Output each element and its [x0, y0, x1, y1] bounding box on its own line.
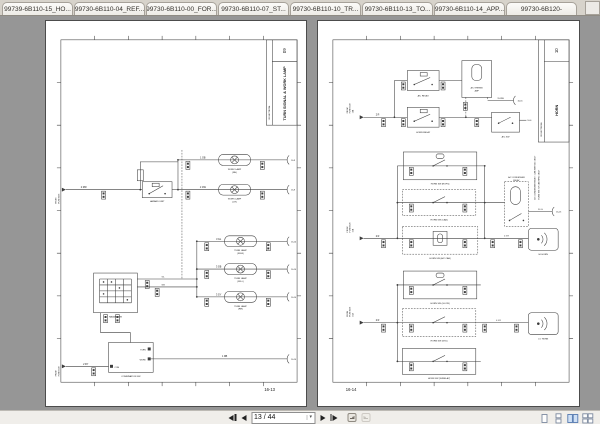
tab-8[interactable]: 99730-6B120- [506, 2, 577, 15]
connector [409, 240, 413, 248]
cross-reference [552, 207, 554, 216]
entry-label: FUSE BOX [58, 366, 60, 377]
entry-label: FROM [55, 197, 57, 203]
connector [186, 161, 190, 169]
cross-reference [287, 292, 289, 301]
ac-switch-box [492, 112, 520, 132]
horn-symbol [537, 233, 547, 246]
continuous-view-button[interactable] [553, 413, 564, 424]
connector [382, 119, 386, 127]
connector [260, 161, 264, 169]
component-label: HI HORN [539, 254, 549, 256]
component-label: A/C SW [502, 136, 511, 139]
pin-label: COM [114, 367, 119, 369]
cross-reference [287, 185, 289, 194]
bar-icon [330, 414, 332, 421]
turn-lamp-row-3: 3 GY 16-14 TURN LAMP (RR) [196, 291, 297, 310]
note-text: HORN SW : W/ CAB SPEC ONLY [537, 169, 540, 200]
tab-label: 99730-6B110-07_ST... [221, 6, 286, 13]
component-label: WORK LAMP [228, 168, 242, 171]
tab-label: 99739-6B110-15_HO... [4, 6, 71, 13]
connector [104, 315, 108, 323]
wire-label: 4 GY [496, 320, 502, 322]
connector [463, 286, 467, 294]
cross-reference [513, 96, 515, 105]
page-number: 16-14 [346, 387, 357, 392]
hazard-switch: HAZARD SW [94, 273, 138, 342]
tab-label: 99730-6B110-04_REF... [75, 6, 144, 13]
connector [102, 191, 106, 199]
connector [463, 324, 467, 332]
cross-ref-label: 16-14 [291, 359, 297, 361]
cross-ref-label: 16-14 [291, 269, 297, 271]
tab-2[interactable]: 99730-6B110-04_REF... [74, 2, 145, 15]
component-label: HAZARD UNIT [150, 200, 165, 203]
sheet-title: TURN SIGNAL & WORK LAMP [283, 66, 287, 121]
connector [266, 298, 270, 306]
connector [441, 82, 445, 90]
cross-reference [287, 155, 289, 164]
connector [155, 288, 159, 296]
component-label: WORK LAMP [228, 198, 242, 201]
component-label: COMBINATION SW [121, 375, 141, 378]
relay-feed-circuit: FROM FUSE BOX 10A 2 R A/C RELAY [347, 61, 532, 139]
connector [518, 240, 522, 248]
entry-arrow [62, 188, 66, 192]
section-label: 16 ELECTRICAL [268, 104, 271, 120]
sheet-number: 10 [554, 48, 559, 53]
tab-3[interactable]: 99730-6B110-00_FOR... [146, 2, 217, 15]
connector [260, 191, 264, 199]
chevron-down-icon[interactable]: ▾ [306, 415, 312, 420]
component-label: (FR-L) [237, 281, 244, 283]
two-page-view-button[interactable] [567, 413, 579, 424]
component-label: (LH) [232, 202, 236, 204]
wire-label: 1 GW [200, 186, 207, 189]
condenser-relay-box [505, 182, 529, 227]
horn-switch-circuits-lower: FROM FUSE BOX 15A 2 R HORN SW (GLOW) [347, 271, 558, 380]
connector [409, 167, 413, 175]
wire-label: 2 R [376, 114, 380, 117]
connector [382, 240, 386, 248]
connector [409, 324, 413, 332]
entry-label: FUSE BOX [58, 193, 60, 204]
entry-label: FUSE BOX [350, 103, 352, 114]
component-label: (RH) [232, 172, 237, 174]
entry-arrow [62, 364, 66, 368]
tab-label: 99730-6B120- [521, 6, 562, 13]
component-label: HORN SW (W/RELAY) [428, 377, 450, 380]
triangle-left-icon [241, 415, 246, 421]
component-label: HORN SW (STD) [431, 341, 448, 343]
previous-view-button[interactable] [347, 412, 358, 423]
connector [92, 368, 96, 376]
tab-4[interactable]: 99730-6B110-07_ST... [218, 2, 289, 15]
connector [475, 119, 479, 127]
connector [491, 240, 495, 248]
entry-label: FROM [55, 370, 57, 376]
component-label: TURN LAMP [234, 249, 247, 252]
entry-label: FROM [347, 311, 349, 317]
connector [441, 119, 445, 127]
document-canvas: 09 TURN SIGNAL & WORK LAMP 16 ELECTRICAL… [0, 17, 600, 410]
tab-label: 99730-6B110-10_TR... [293, 6, 359, 13]
work-lamp-circuit-lh: 1 GW 16-9 WORK LAMP (LH) [178, 184, 295, 203]
tab-7[interactable]: 99730-6B110-14_APP... [434, 2, 505, 15]
cross-reference [287, 237, 289, 246]
connector [463, 102, 467, 110]
right-wiring-diagram-svg: 10 HORN 16 ELECTRICAL A/C CONDENSER RELA… [318, 21, 579, 406]
connector [401, 82, 405, 90]
section-label: 16 ELECTRICAL [540, 121, 543, 137]
horn-switch-circuits-upper: FROM FUSE BOX 15A 2 R HORN SW (ROPS) [347, 152, 562, 260]
entry-arrow [360, 115, 364, 119]
feed-circuit: FROM FUSE BOX 2 RW HAZARD UNIT [55, 150, 182, 279]
entry-label: 10A [352, 109, 355, 113]
drawing-frame [329, 36, 573, 386]
connector [409, 204, 413, 212]
component-label: A/C THERMO [471, 86, 484, 89]
component-label: HORN SW (CAB) [431, 218, 448, 221]
tab-label: 99730-6B110-13_TO... [365, 6, 431, 13]
page-number: 16-13 [264, 387, 275, 392]
wire-label: GB [162, 284, 166, 286]
first-page-button[interactable] [229, 414, 237, 421]
entry-arrow [360, 321, 364, 325]
view-history [347, 412, 372, 423]
connector [186, 191, 190, 199]
previous-page-button[interactable] [241, 415, 246, 421]
connector [409, 363, 413, 371]
page-layout-controls [539, 413, 594, 424]
bar-icon [235, 414, 237, 421]
cross-ref-label: 16-14 [291, 297, 297, 299]
connector [463, 204, 467, 212]
connector [463, 167, 467, 175]
connector [514, 324, 518, 332]
wire-label: 1 GB [200, 156, 206, 159]
component-label: LO HORN [538, 339, 548, 341]
triangle-right-icon [320, 415, 325, 421]
work-lamp-circuit-rh: 1 GB 16-9 WORK LAMP (RH) [178, 154, 295, 173]
title-block: 09 TURN SIGNAL & WORK LAMP 16 ELECTRICAL [266, 40, 297, 125]
page-navigation: 13 / 44 ▾ [229, 411, 372, 424]
component-label: TURN LAMP [234, 305, 247, 308]
wire-label: 2 RY [83, 363, 89, 366]
tab-5[interactable]: 99730-6B110-10_TR... [290, 2, 361, 15]
wire-label: 4 GY [504, 236, 510, 238]
cross-ref-label: 16-14 [291, 241, 297, 243]
connector [205, 243, 209, 251]
page-right-wiring-diagram: 10 HORN 16 ELECTRICAL A/C CONDENSER RELA… [317, 20, 580, 407]
entry-label: 15A [352, 313, 355, 317]
wire-label: 15 BW [497, 98, 504, 100]
component-label: HORN SW (ROPS) [431, 184, 450, 186]
component-label: HAZARD SW [109, 316, 123, 319]
connector [205, 271, 209, 279]
wire-label: 2 RW [81, 186, 88, 189]
component-label: (RR) [238, 309, 243, 311]
page-number-input[interactable]: 13 / 44 ▾ [251, 412, 315, 424]
entry-label: FROM [347, 226, 349, 232]
component-label: HORN SW (GLOW) [430, 303, 449, 305]
cross-ref-label: 16-9 [291, 160, 295, 162]
horn-sw-box-c [402, 226, 477, 254]
cross-ref-label: 16-15 [556, 212, 562, 214]
tab-label: 99730-6B110-14_APP... [435, 6, 504, 13]
wire-label: 3 GB [216, 266, 222, 269]
horn-symbol [537, 317, 547, 330]
component-label: (FR-R) [237, 253, 244, 255]
component-label: AMP [475, 89, 480, 92]
component-label: A/C CONDENSER [508, 176, 525, 179]
cross-ref-label: 16-6 [527, 120, 532, 122]
connector [266, 271, 270, 279]
cross-reference [287, 265, 289, 274]
sheet-number: 09 [282, 48, 287, 53]
connector [145, 280, 149, 288]
entry-label: 15A [352, 228, 355, 232]
turn-lamp-row-2: 3 GB 16-14 TURN LAMP (FR-L) [196, 264, 297, 283]
component-label: TURN LAMP [234, 277, 247, 280]
component-label: HORN RELAY [416, 131, 431, 134]
wire-label: 1 RB [222, 355, 228, 358]
next-view-button[interactable] [361, 412, 372, 423]
last-page-button[interactable] [330, 414, 338, 421]
title-block: 10 HORN 16 ELECTRICAL [538, 40, 569, 142]
single-page-view-button[interactable] [539, 413, 550, 424]
drawing-frame [57, 36, 301, 386]
hazard-unit-box [142, 182, 172, 198]
connector [483, 324, 487, 332]
pin-label: WORK [140, 360, 147, 362]
triangle-left-icon [229, 415, 234, 421]
turn-lamp-row-1: 3 GL 16-14 TURN LAMP (FR-R) [196, 236, 297, 255]
wire-label: 3 GL [216, 238, 222, 241]
connector [463, 363, 467, 371]
connector [401, 119, 405, 127]
cross-ref-label: 16-15 [517, 100, 523, 102]
wire-label: 2 R [376, 319, 380, 322]
component-label: HORN SW (A/C CAB) [429, 257, 451, 260]
entry-label: FUSE BOX [350, 306, 352, 317]
connector [382, 324, 386, 332]
connector [463, 240, 467, 248]
note-text: A/C CONDENSER RELAY : CAB WITH A/C ONLY [533, 155, 536, 200]
combination-switch: TURN WORK COM COMBINATION SW FROM FUSE B… [55, 343, 297, 379]
tab-scroll-button[interactable] [585, 1, 600, 15]
entry-label: FROM [347, 107, 349, 113]
tab-6[interactable]: 99730-6B110-13_TO... [362, 2, 433, 15]
tab-bar: 99739-6B110-15_HO... 99730-6B110-04_REF.… [0, 0, 600, 16]
next-page-button[interactable] [320, 415, 325, 421]
turn-signal-circuits: GL GB 3 GL 16-14 TURN LAMP (FR-R) [137, 236, 297, 311]
entry-arrow [360, 236, 364, 240]
side-notes: A/C CONDENSER RELAY : CAB WITH A/C ONLY … [533, 155, 540, 200]
two-page-continuous-view-button[interactable] [582, 413, 594, 424]
wire-label: 10 G [538, 209, 543, 211]
connector [205, 298, 209, 306]
connector [409, 286, 413, 294]
sheet-title: HORN [555, 104, 559, 115]
wire-label: 3 GY [216, 293, 222, 296]
tab-1[interactable]: 99739-6B110-15_HO... [2, 2, 73, 15]
entry-label: FUSE BOX [350, 222, 352, 233]
component-label: A/C RELAY [418, 94, 430, 97]
tab-label: 99730-6B110-00_FOR... [146, 6, 217, 13]
connector [266, 243, 270, 251]
left-wiring-diagram-svg: 09 TURN SIGNAL & WORK LAMP 16 ELECTRICAL… [46, 21, 306, 406]
wire-label: GL [162, 277, 166, 279]
pin-label: TURN [140, 350, 146, 352]
page-number-value: 13 / 44 [254, 414, 275, 421]
cross-reference [287, 354, 289, 363]
status-bar: 13 / 44 ▾ [0, 410, 600, 424]
cross-ref-label: 16-9 [291, 190, 295, 192]
wire-label: 2 R [376, 235, 380, 238]
triangle-right-icon [333, 415, 338, 421]
page-left-wiring-diagram: 09 TURN SIGNAL & WORK LAMP 16 ELECTRICAL… [45, 20, 307, 407]
